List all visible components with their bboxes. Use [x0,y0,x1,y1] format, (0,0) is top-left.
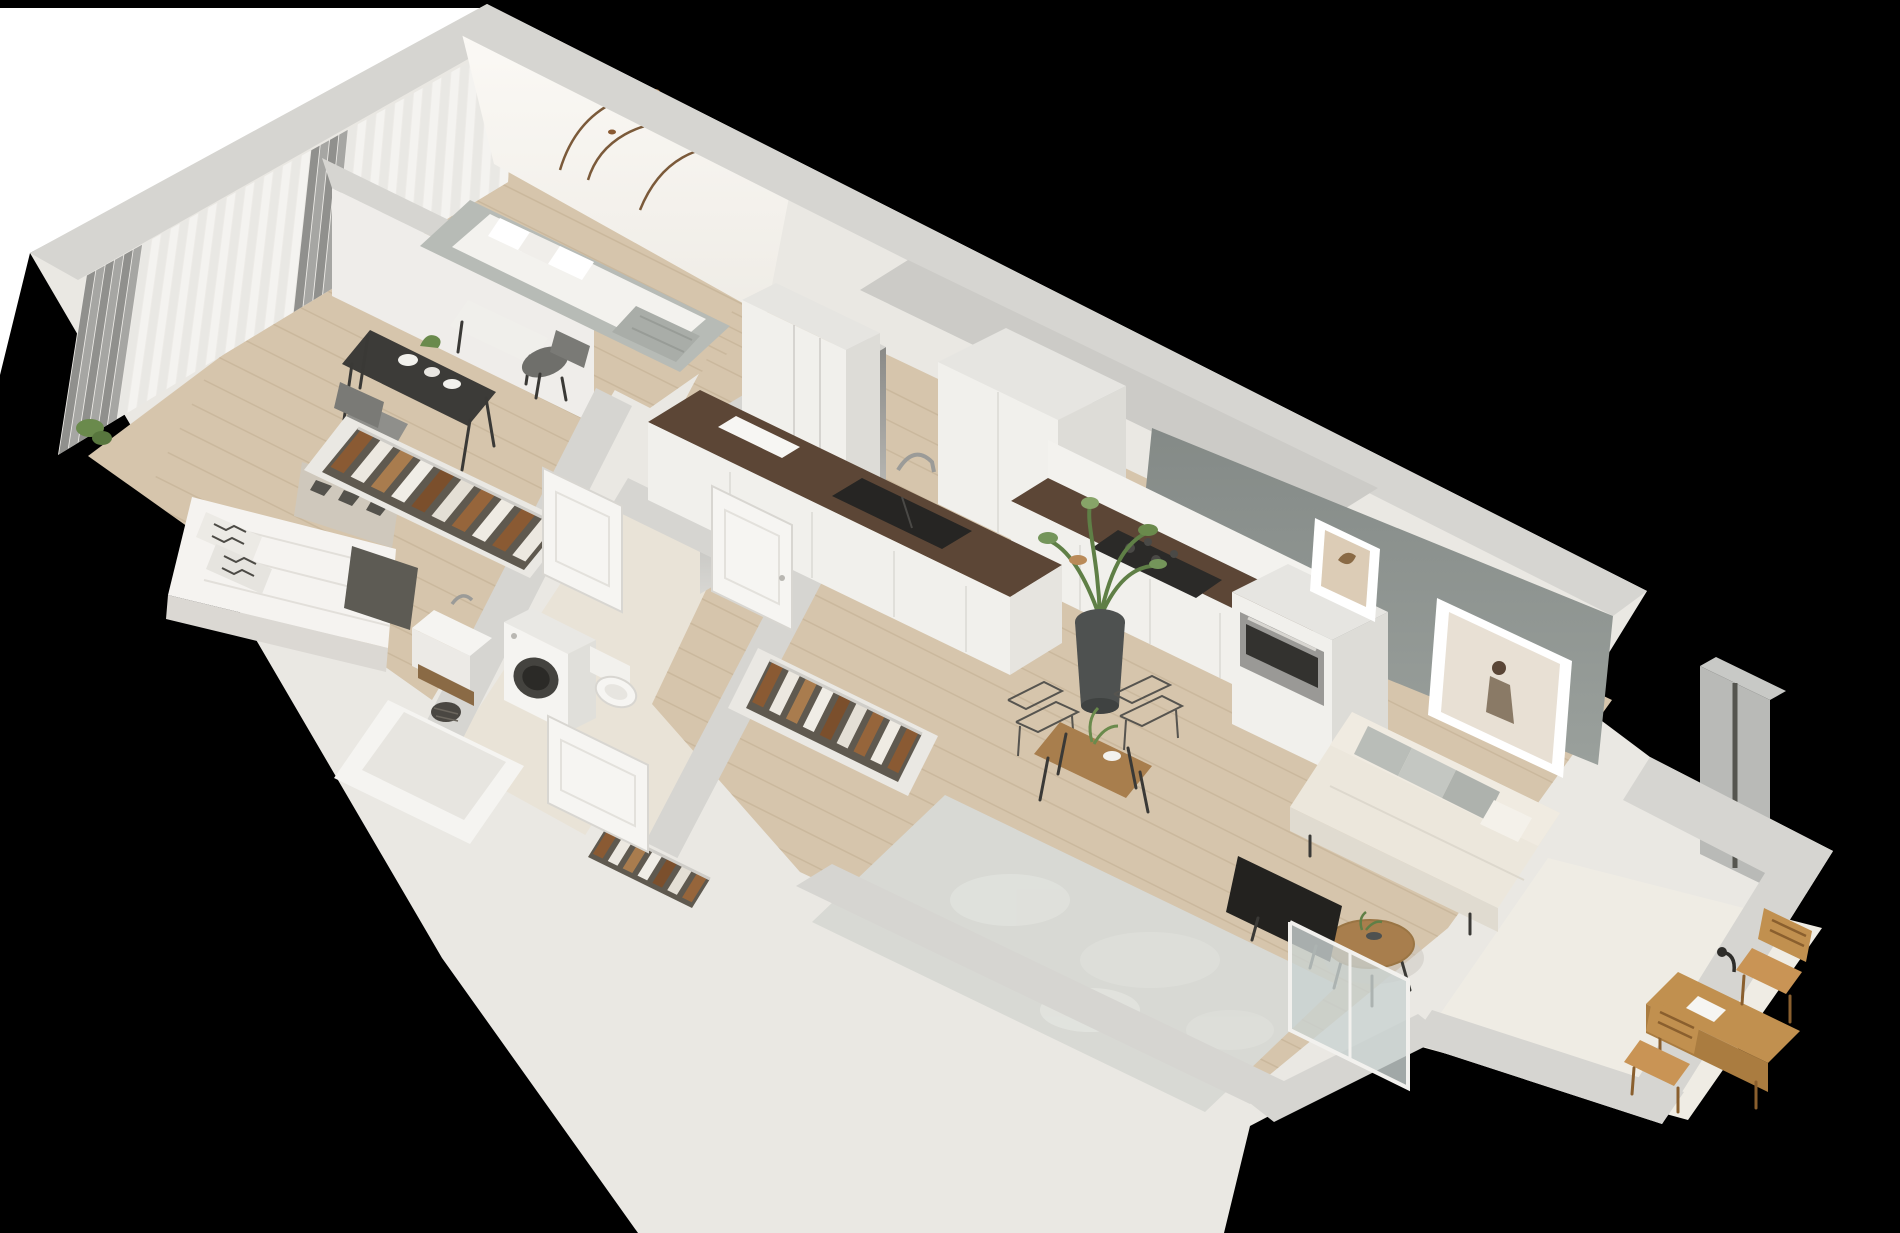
floorplan-stage: 3D isometric render of a one-bedroom apa… [0,0,1900,1233]
door-handle [779,575,785,581]
figure-head [1492,661,1506,675]
floorplan-render: 3D isometric render of a one-bedroom apa… [0,0,1900,1233]
corner-plant-leaves2 [92,431,112,445]
